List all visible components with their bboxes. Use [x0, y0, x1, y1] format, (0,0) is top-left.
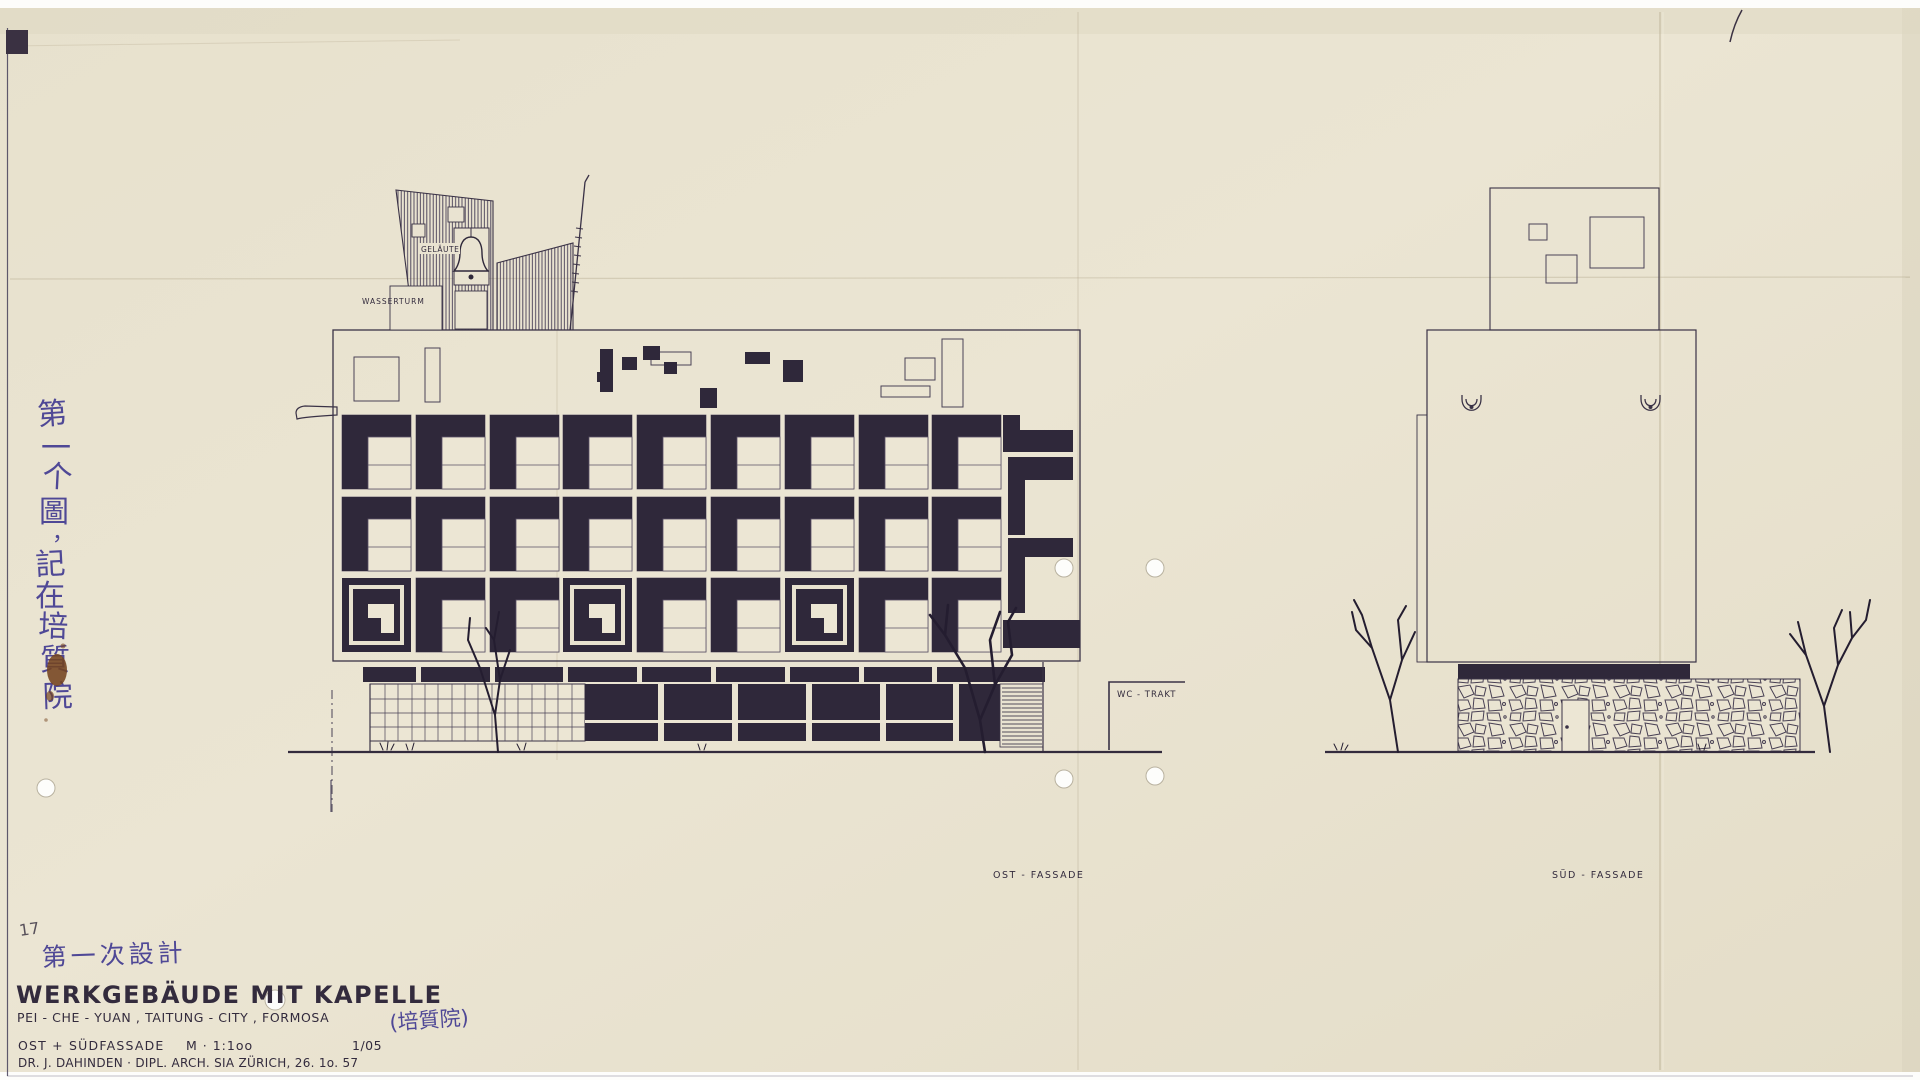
- punch-hole: [1055, 559, 1073, 577]
- calligraphy-char: 培: [38, 609, 69, 645]
- wasserturm-label: WASSERTURM: [362, 297, 425, 306]
- facade-cell-concentric: [342, 578, 411, 652]
- views-label: OST + SÜDFASSADE: [18, 1037, 165, 1053]
- ost-fassade-caption: OST - FASSADE: [993, 870, 1084, 881]
- workshop-glazing: [370, 684, 585, 741]
- design-note-cn: 第一次設計: [41, 938, 187, 972]
- wc-trakt-label: WC - TRAKT: [1117, 690, 1177, 700]
- credit-line: DR. J. DAHINDEN · DIPL. ARCH. SIA ZÜRICH…: [18, 1054, 358, 1070]
- facade-cell: [342, 415, 411, 489]
- scanned-architectural-drawing: WC - TRAKT: [0, 0, 1920, 1080]
- punch-hole: [1146, 767, 1164, 785]
- punch-hole: [37, 779, 55, 797]
- sued-fassade-caption: SÜD - FASSADE: [1552, 870, 1644, 881]
- drawing-title: WERKGEBÄUDE MIT KAPELLE: [16, 980, 443, 1009]
- drawing-location: PEI - CHE - YUAN , TAITUNG - CITY , FORM…: [17, 1010, 329, 1025]
- punch-hole: [1055, 770, 1073, 788]
- calligraphy-char: ，: [52, 521, 74, 546]
- corner-ink-mark: [6, 30, 28, 54]
- scale-label: M · 1:1oo: [186, 1038, 253, 1053]
- stone-wall-door: [1562, 700, 1589, 752]
- ground-floor: [363, 662, 1045, 752]
- gelaeute-label: GELÄUTE: [421, 245, 459, 254]
- calligraphy-char: 个: [42, 459, 74, 496]
- calligraphy-char: 記: [35, 546, 67, 583]
- pencil-sheet-number: 17: [18, 918, 41, 940]
- south-shadow-band: [1458, 664, 1690, 680]
- punch-hole: [1146, 559, 1164, 577]
- drawing-canvas: WC - TRAKT: [0, 0, 1920, 1080]
- storefront-panels: [585, 684, 1000, 741]
- stone-base-wall: [1458, 679, 1800, 752]
- louver-panel: [1000, 684, 1043, 747]
- calligraphy-char: 第: [36, 396, 68, 433]
- bell-box: [454, 228, 489, 285]
- facade-grid: [342, 415, 1001, 652]
- sheet-number: 1/05: [352, 1038, 382, 1053]
- ground-floor-beam: [363, 667, 1045, 682]
